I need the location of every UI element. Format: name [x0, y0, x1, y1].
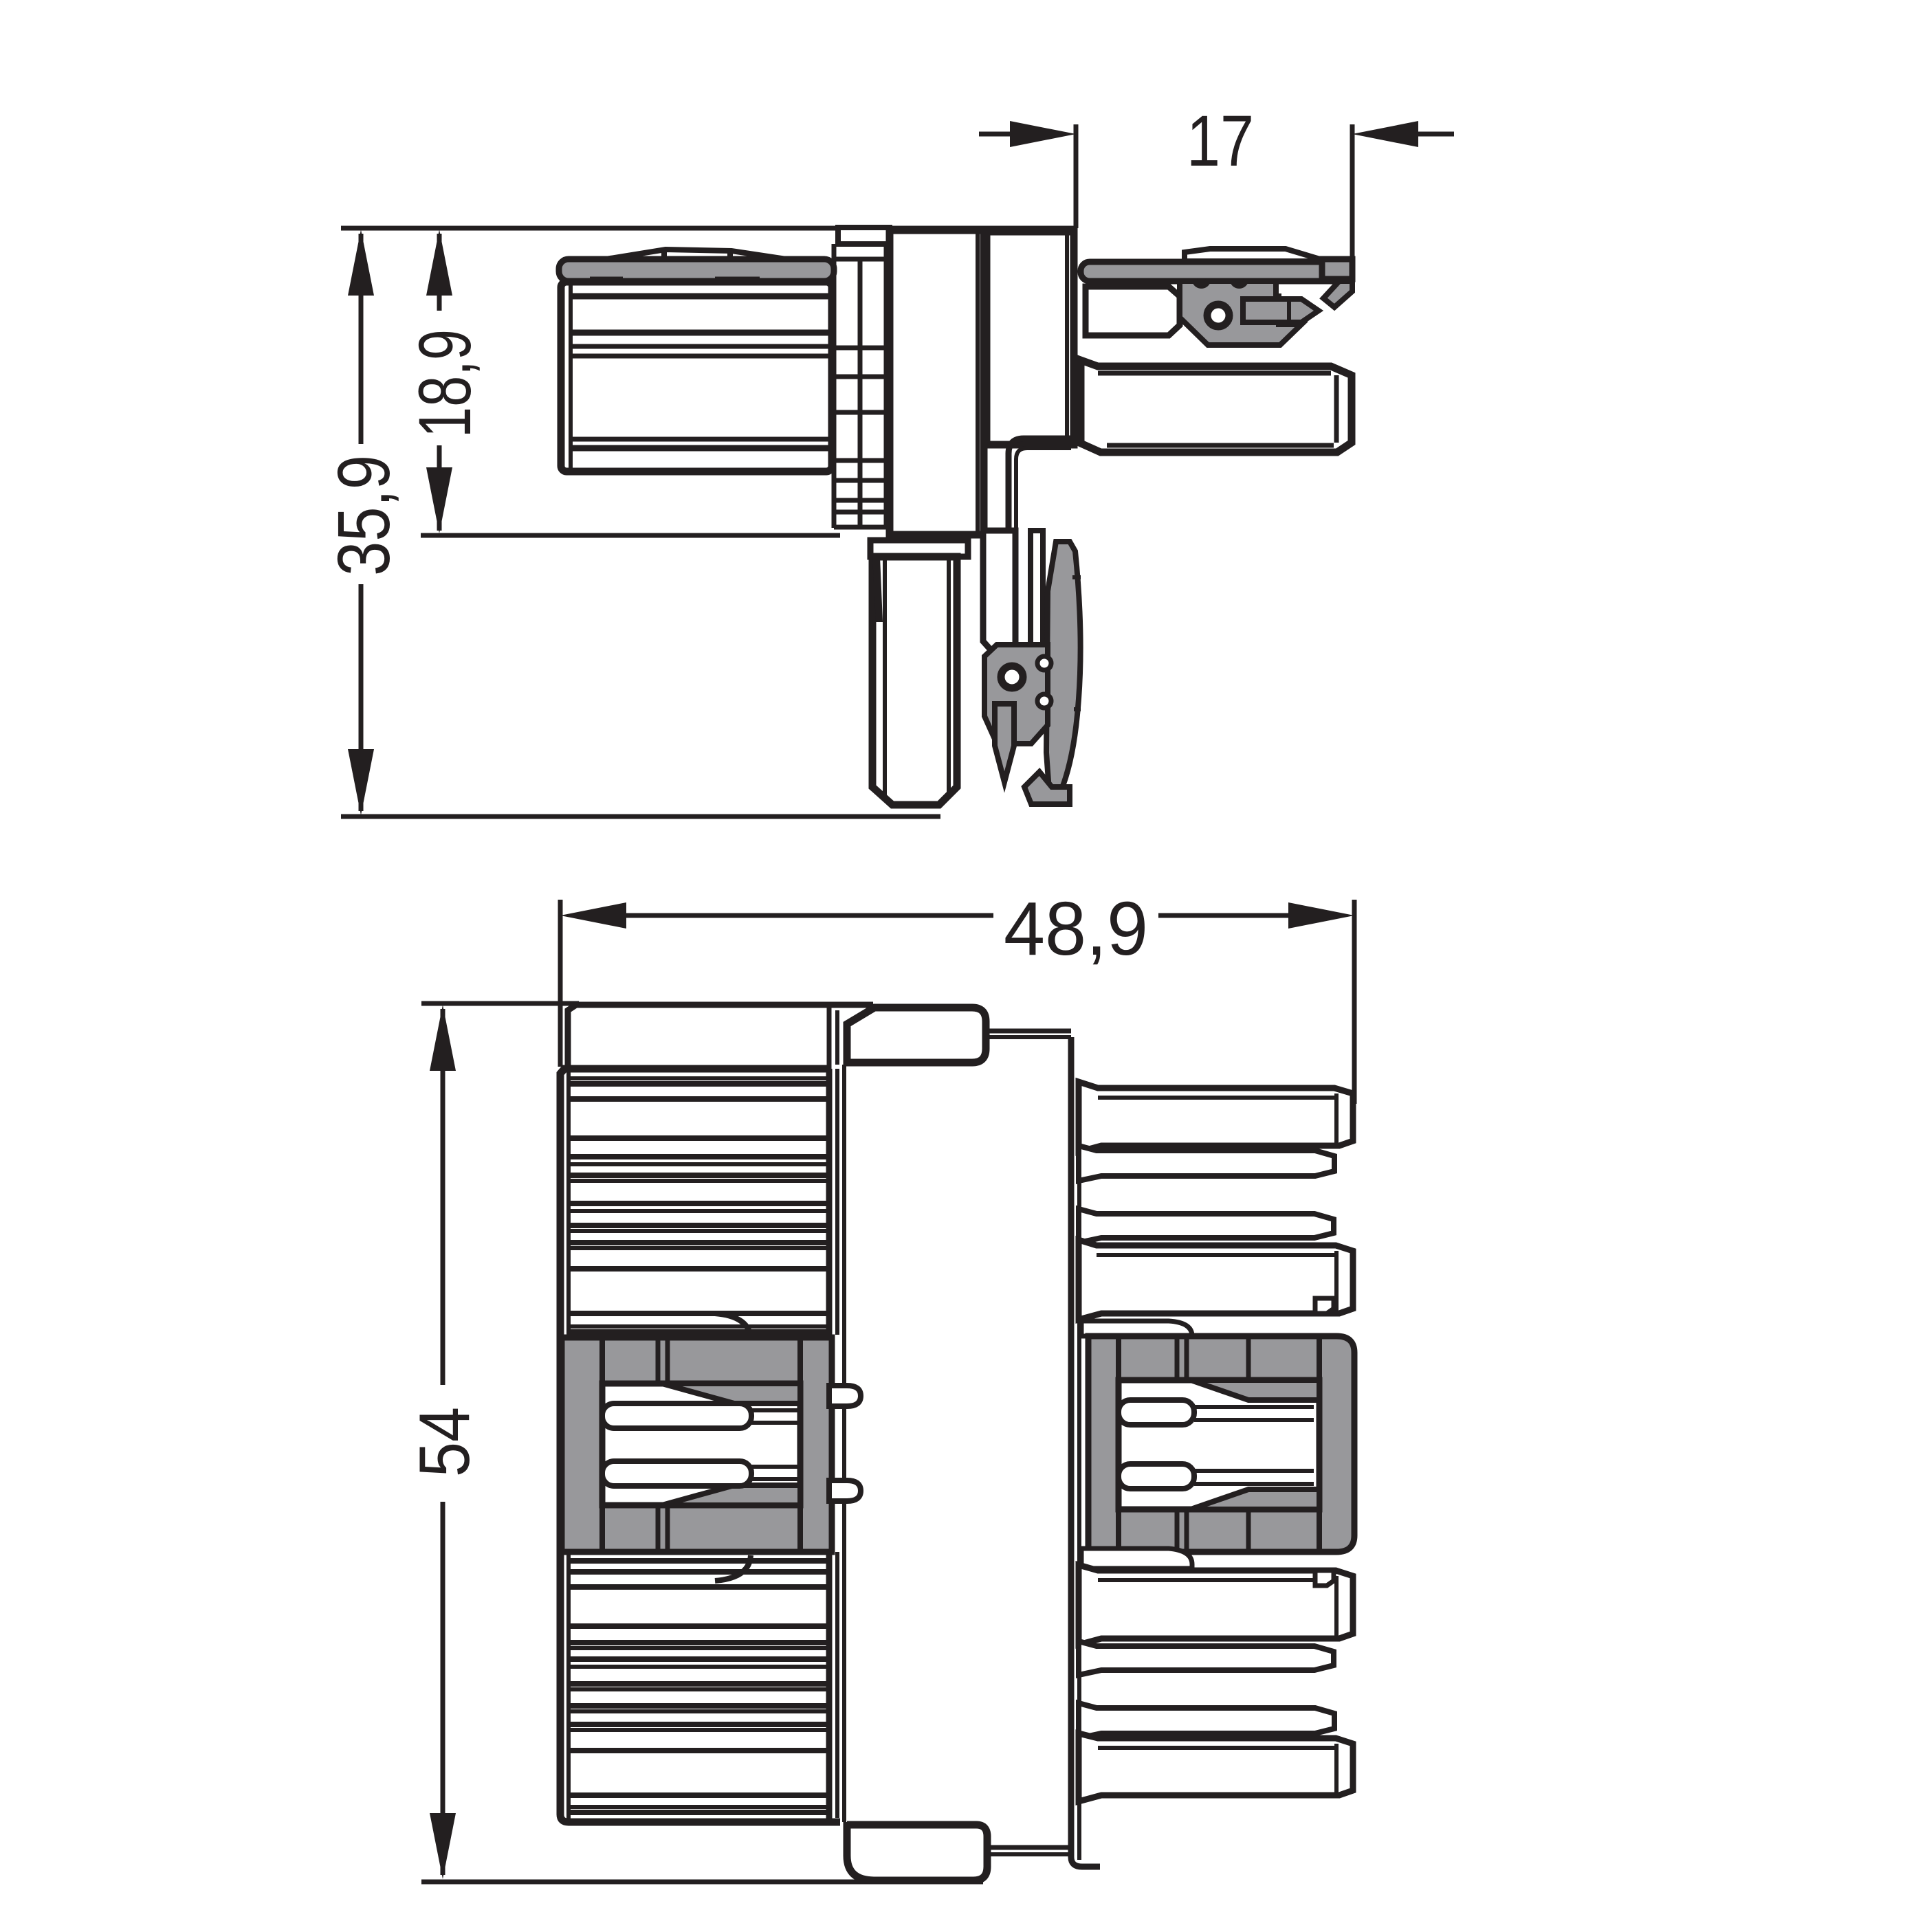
svg-text:17: 17	[1187, 101, 1254, 181]
svg-text:18,9: 18,9	[403, 329, 486, 438]
svg-text:54: 54	[405, 1407, 485, 1477]
svg-text:35,9: 35,9	[322, 455, 405, 576]
svg-text:48,9: 48,9	[1004, 887, 1148, 971]
